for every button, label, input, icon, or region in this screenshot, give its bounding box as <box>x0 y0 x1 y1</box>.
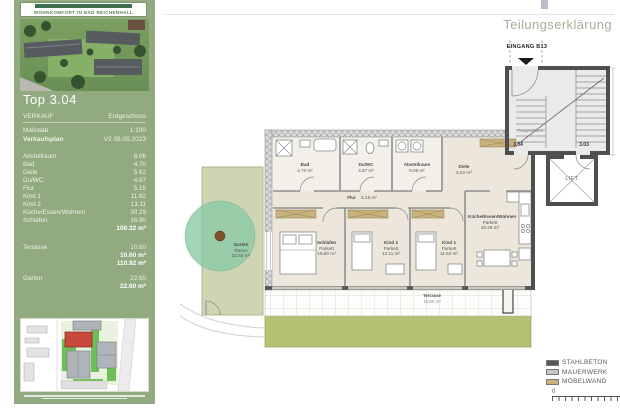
sidebar-caption <box>24 395 145 399</box>
terrasse-row: Terrasse10.60 <box>23 244 146 252</box>
header-divider <box>165 14 614 15</box>
desk-icon <box>386 264 404 274</box>
aerial-photo <box>20 19 149 91</box>
floor-plan-svg <box>180 36 615 366</box>
bathtub-icon <box>314 139 336 151</box>
garden-area <box>185 167 263 315</box>
room-area-table: Abstellraum8.06 Bad4.70 Diele5.62 Du/WC4… <box>23 153 146 291</box>
garten-row: Garten22.60 <box>23 275 146 283</box>
room-row: Bad4.70 <box>23 161 146 169</box>
site-plan-art <box>21 319 148 391</box>
info-label: Verkaufsplan <box>23 135 63 144</box>
floor-plan: EINGANG B13 Treppenhaus 3.04 3.03 LIFT B… <box>180 36 615 366</box>
highlighted-building <box>65 332 92 347</box>
info-value: Erdgeschoss <box>108 112 146 121</box>
brand-slogan: WOHNKOMFORT IN BAD REICHENHALL <box>34 10 133 15</box>
lawn-strip <box>265 316 531 347</box>
terrasse-subtotal: 10.60 m² <box>23 252 146 261</box>
room-row: Du/WC4.87 <box>23 177 146 185</box>
room-row: Abstellraum8.06 <box>23 153 146 161</box>
sidebar-details: Top 3.04 VERKAUF Erdgeschoss Maßstab 1:1… <box>23 92 146 291</box>
room-row: Küche/Essen/Wohnen30.29 <box>23 209 146 217</box>
page: WOHNKOMFORT IN BAD REICHENHALL <box>0 0 620 410</box>
stairwell <box>505 40 610 155</box>
aerial-photo-art <box>20 19 149 91</box>
room-row: Schlafen16.90 <box>23 217 146 225</box>
info-row-massstab: Maßstab 1:100 <box>23 126 146 135</box>
document-title: Teilungserklärung <box>503 17 612 32</box>
material-legend: STAHLBETON MAUERWERK MÖBELWAND <box>546 359 620 388</box>
site-plan-minimap <box>20 318 149 392</box>
legend-item-stahlbeton: STAHLBETON <box>546 359 620 366</box>
garten-subtotal: 22.60 m² <box>23 283 146 292</box>
info-label: Maßstab <box>23 126 48 135</box>
grand-total: 110.92 m² <box>23 260 146 269</box>
wc-icon <box>366 143 374 154</box>
legend-item-moebelwand: MÖBELWAND <box>546 378 620 385</box>
scale-zero-label: 0 <box>552 389 620 395</box>
info-value: 1:100 <box>130 126 146 135</box>
brand-header: WOHNKOMFORT IN BAD REICHENHALL <box>20 2 147 17</box>
room-row: Flur5.15 <box>23 185 146 193</box>
tree-trunk-icon <box>215 231 225 241</box>
entrance-arrow-icon <box>518 58 534 65</box>
info-row-verkaufsplan: Verkaufsplan V2 08.05.2023 <box>23 135 146 144</box>
scale-bar: 0 <box>552 389 620 402</box>
terrace <box>265 287 531 316</box>
moebelwand-swatch-icon <box>546 379 559 385</box>
mauerwerk-swatch-icon <box>546 369 559 375</box>
stahlbeton-swatch-icon <box>546 360 559 366</box>
fridge-icon <box>519 248 531 260</box>
company-logo-fragment <box>541 0 548 9</box>
scale-ruler <box>552 396 620 402</box>
kitchen-sink-icon <box>521 204 529 216</box>
room-row: Diele5.62 <box>23 169 146 177</box>
legend-item-mauerwerk: MAUERWERK <box>546 369 620 376</box>
info-label: VERKAUF <box>23 112 54 121</box>
dimension-line <box>610 68 615 155</box>
lift-shaft <box>546 155 598 206</box>
info-row-verkauf: VERKAUF Erdgeschoss <box>23 112 146 123</box>
sink-icon <box>300 140 310 147</box>
dining-table-icon <box>484 250 510 266</box>
brand-logo <box>35 4 133 8</box>
info-value: V2 08.05.2023 <box>104 135 146 144</box>
living-area-total: 100.32 m² <box>23 225 146 234</box>
sidebar: WOHNKOMFORT IN BAD REICHENHALL <box>14 0 155 404</box>
unit-title: Top 3.04 <box>23 92 146 107</box>
room-row: Kind 213.11 <box>23 201 146 209</box>
room-row: Kind 111.62 <box>23 193 146 201</box>
sink-icon <box>379 140 388 146</box>
desk-icon <box>448 264 462 274</box>
